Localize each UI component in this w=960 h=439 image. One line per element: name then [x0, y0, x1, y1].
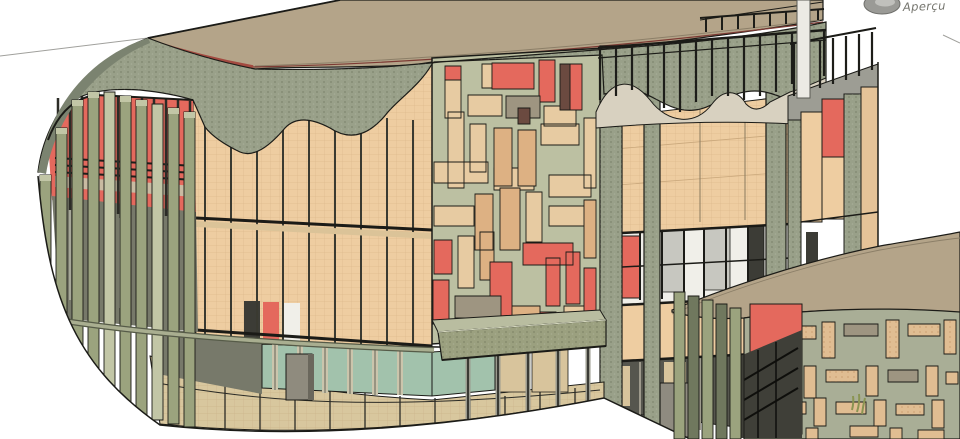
model-canvas[interactable]: Aperçu — [0, 0, 960, 439]
guide-dash — [943, 35, 960, 43]
corner-red-panel — [822, 99, 844, 157]
column — [797, 0, 810, 98]
preview-overlay: Aperçu — [864, 0, 960, 43]
preview-label: Aperçu — [902, 0, 946, 14]
3d-viewport[interactable]: Aperçu — [0, 0, 960, 439]
navigation-wheel-icon[interactable] — [864, 0, 900, 14]
secondary-fins — [674, 292, 741, 439]
